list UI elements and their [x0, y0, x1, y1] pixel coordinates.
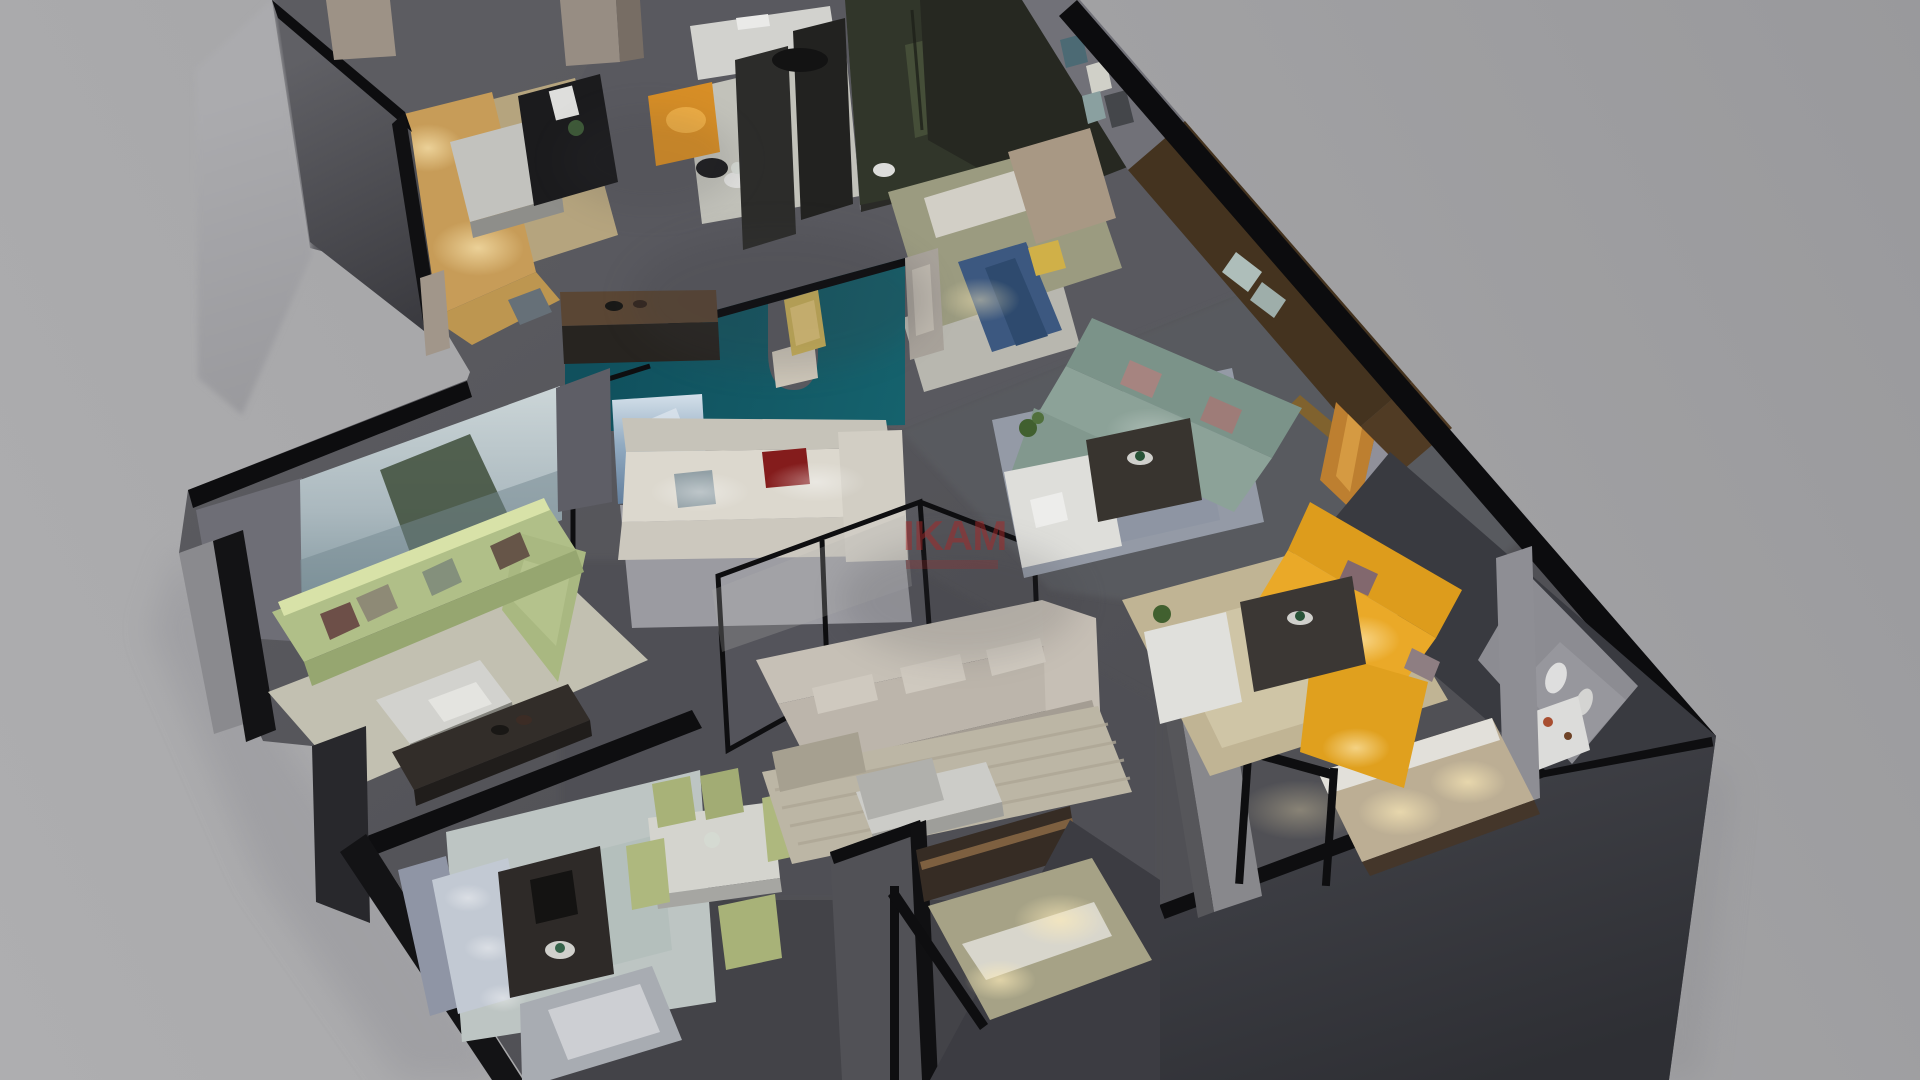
svg-text:IKAM: IKAM: [903, 512, 1006, 559]
